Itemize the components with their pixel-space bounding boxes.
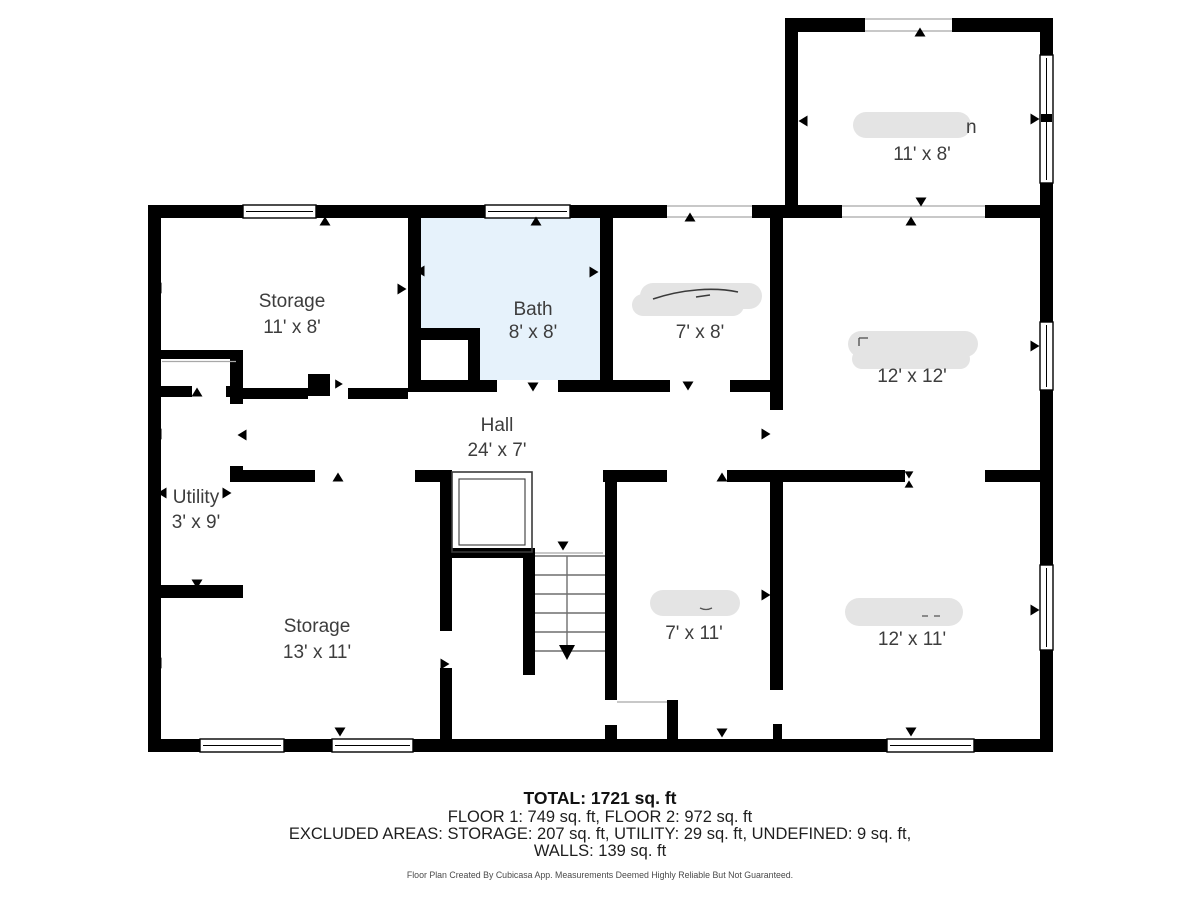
wall-segment	[408, 218, 421, 385]
wall-segment	[783, 470, 905, 482]
wall-segment	[773, 724, 782, 739]
room-dims: 12' x 12'	[877, 366, 947, 387]
wall-segment	[408, 328, 480, 340]
window	[1040, 322, 1053, 390]
wall-segment	[730, 380, 783, 392]
door-arrow-icon	[905, 480, 914, 487]
door-arrow-icon	[916, 198, 927, 207]
wall-segment	[985, 470, 1040, 482]
wall-segment	[233, 470, 315, 482]
door-arrow-icon	[1031, 341, 1040, 352]
door-arrow-icon	[915, 28, 926, 37]
door-arrow-icon	[717, 473, 728, 482]
window	[1040, 565, 1053, 650]
window	[1040, 55, 1053, 183]
wall-segment	[348, 388, 408, 399]
chimney-square	[308, 374, 330, 396]
room-dims: 24' x 7'	[467, 440, 526, 461]
door-arrow-icon	[1031, 114, 1040, 125]
room-name: Bath	[513, 299, 552, 320]
door-arrow-icon	[905, 471, 914, 478]
door-arrow-icon	[906, 728, 917, 737]
wall-segment	[770, 470, 783, 690]
door-arrow-icon	[335, 728, 346, 737]
summary-walls: WALLS: 139 sq. ft	[534, 842, 667, 860]
window	[243, 205, 316, 218]
wall-segment	[148, 386, 192, 397]
wall-segment	[1040, 390, 1053, 565]
wall-segment	[1040, 18, 1053, 55]
stair-landing-outline-inner	[459, 479, 525, 545]
wall-segment	[468, 340, 480, 386]
wall-segment	[284, 739, 332, 752]
window	[200, 739, 284, 752]
room-name: Hall	[481, 415, 514, 436]
wall-segment	[440, 668, 452, 739]
room-dims: 7' x 8'	[676, 322, 724, 343]
wall-segment	[415, 470, 452, 482]
door-arrow-icon	[238, 430, 247, 441]
wall-segment	[600, 218, 613, 380]
wall-segment	[613, 380, 670, 392]
wall-segment	[1040, 205, 1053, 322]
room-name-remnant: n	[966, 117, 977, 138]
door-arrow-icon	[762, 429, 771, 440]
wall-segment	[316, 205, 485, 218]
room-name: Storage	[259, 291, 326, 312]
wall-segment	[1040, 650, 1053, 752]
redacted-room-label	[853, 112, 971, 138]
floor-plan-page: Storage 11' x 8' Bath 8' x 8' 7' x 8' 12…	[0, 0, 1200, 900]
door-arrow-icon	[528, 383, 539, 392]
wall-segment	[413, 739, 887, 752]
wall-segment	[158, 350, 243, 359]
door-arrow-icon	[192, 388, 203, 397]
room-dims: 13' x 11'	[283, 642, 351, 663]
wall-segment	[243, 388, 308, 399]
room-dims: 11' x 8'	[263, 317, 321, 338]
window	[887, 739, 974, 752]
wall-segment	[952, 18, 1053, 32]
door-arrow-icon	[683, 382, 694, 391]
room-name: Utility	[173, 487, 220, 508]
room-dims: 11' x 8'	[893, 144, 951, 165]
wall-segment	[603, 470, 667, 482]
redacted-room-label	[848, 331, 978, 369]
door-arrow-icon	[223, 488, 232, 499]
stair-landing-outline	[452, 472, 532, 552]
summary-block: TOTAL: 1721 sq. ft FLOOR 1: 749 sq. ft, …	[289, 788, 911, 880]
wall-segment	[752, 205, 842, 218]
room-dims: 3' x 9'	[172, 512, 220, 533]
window	[332, 739, 413, 752]
window	[485, 205, 570, 218]
door-arrow-icon	[717, 729, 728, 738]
room-dims: 8' x 8'	[509, 322, 557, 343]
stair-direction-arrow-icon	[559, 645, 575, 660]
wall-segment	[570, 205, 667, 218]
door-arrow-icon	[441, 659, 450, 670]
wall-segment	[148, 739, 200, 752]
wall-segment	[727, 470, 783, 482]
room-dims: 12' x 11'	[878, 629, 946, 650]
bath-floor-fill	[421, 218, 600, 380]
redacted-room-label	[632, 283, 762, 316]
wall-segment	[605, 725, 617, 739]
summary-total: TOTAL: 1721 sq. ft	[524, 788, 677, 808]
door-arrow-icon	[762, 590, 771, 601]
door-arrow-icon	[335, 379, 343, 388]
room-name: Storage	[284, 616, 351, 637]
redacted-room-label	[650, 590, 740, 616]
door-arrow-icon	[799, 116, 808, 127]
floor-plan-canvas: Storage 11' x 8' Bath 8' x 8' 7' x 8' 12…	[0, 0, 1200, 900]
wall-segment	[523, 557, 535, 675]
wall-segment	[785, 18, 798, 218]
wall-segment	[667, 700, 678, 739]
wall-segment	[440, 548, 535, 558]
door-arrow-icon	[398, 284, 407, 295]
wall-segment	[770, 205, 783, 410]
wall-segment	[408, 380, 497, 392]
door-arrow-icon	[333, 473, 344, 482]
door-arrow-icon	[1031, 605, 1040, 616]
door-arrow-icon	[906, 217, 917, 226]
wall-segment	[148, 205, 243, 218]
redacted-room-label	[845, 598, 963, 626]
door-arrow-icon	[558, 542, 569, 551]
room-dims: 7' x 11'	[665, 623, 723, 644]
summary-excluded: EXCLUDED AREAS: STORAGE: 207 sq. ft, UTI…	[289, 825, 911, 843]
wall-segment	[558, 380, 613, 392]
summary-floors: FLOOR 1: 749 sq. ft, FLOOR 2: 972 sq. ft	[448, 808, 753, 826]
watermark-text: Floor Plan Created By Cubicasa App. Meas…	[407, 870, 793, 880]
wall-segment	[226, 386, 243, 397]
wall-segment	[148, 585, 243, 598]
